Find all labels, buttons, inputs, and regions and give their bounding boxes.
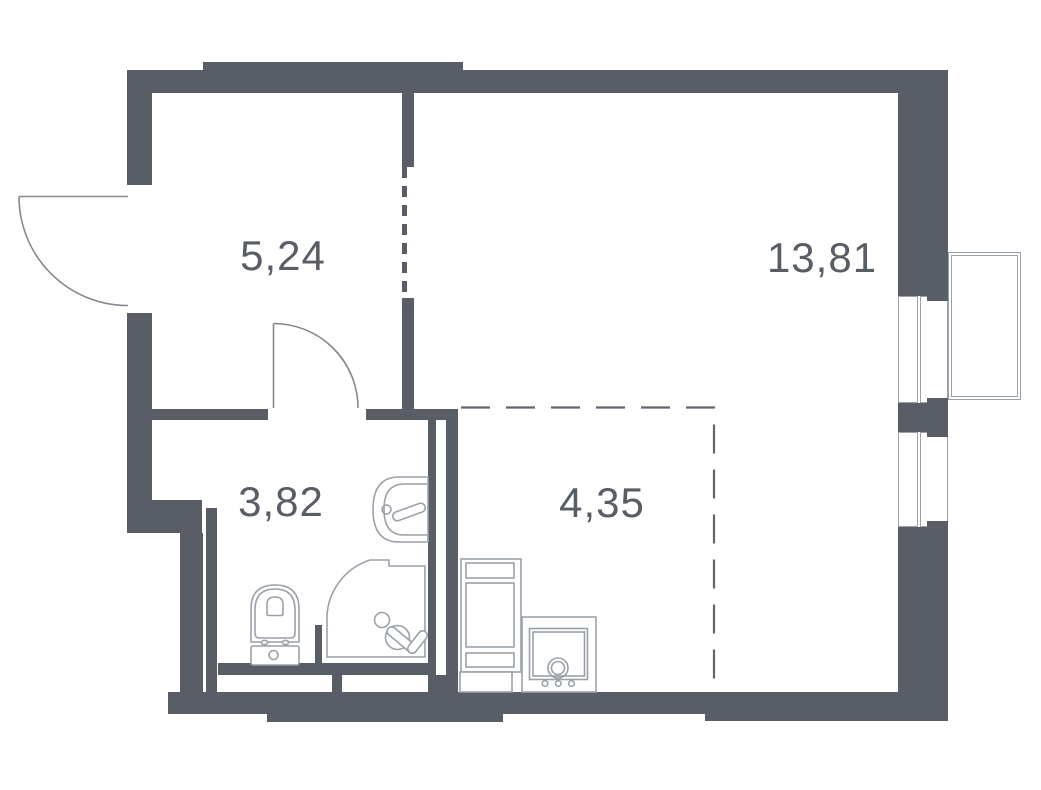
entry-door <box>19 197 128 306</box>
wall-left-inner-strip <box>206 508 217 692</box>
wall-bath-right <box>428 420 436 675</box>
stove <box>522 617 596 692</box>
wall-right-pier <box>898 403 948 432</box>
window-reveal-step-4 <box>927 521 948 527</box>
washbasin <box>373 477 428 542</box>
toilet <box>251 585 299 665</box>
room-label-living-room: 13,81 <box>767 234 877 282</box>
room-label-bathroom: 3,82 <box>238 478 324 526</box>
wall-left-above-door <box>127 93 152 185</box>
wall-partition-upper <box>402 93 414 167</box>
window-reveal-step-1 <box>927 296 948 301</box>
wall-duct-stub <box>332 675 342 692</box>
wall-bath-bottom <box>218 663 436 675</box>
window-lower-glazing-line <box>917 432 921 527</box>
room-label-kitchen: 4,35 <box>559 479 645 527</box>
floor-plan: 5,24 13,81 3,82 4,35 <box>0 0 1041 790</box>
wall-left-below-door <box>127 313 152 500</box>
window-upper-glazing-line <box>917 296 921 403</box>
window-upper <box>898 296 948 403</box>
room-label-hallway: 5,24 <box>240 232 326 280</box>
wall-right-lower <box>898 527 948 692</box>
tall-cabinet <box>460 559 521 692</box>
bathroom-door <box>274 324 359 409</box>
wall-right-upper <box>898 93 948 296</box>
wall-shower-stub <box>315 625 322 663</box>
shower <box>327 560 429 657</box>
wall-top-tab <box>203 62 463 71</box>
wall-left-jog-block <box>127 500 202 533</box>
wall-left-lower <box>180 533 203 692</box>
wall-kitchen-side <box>446 420 458 692</box>
window-lower <box>898 432 948 527</box>
fixtures-layer <box>0 0 1041 790</box>
balcony <box>948 252 1021 400</box>
wall-bottom-tab-right <box>705 714 948 721</box>
balcony-inner-line <box>951 255 1018 397</box>
wall-top <box>127 70 948 93</box>
wall-bottom-tab-left <box>267 714 503 722</box>
kitchen-zone-dashed-boundary <box>461 408 714 691</box>
wall-partition-lower <box>402 298 414 409</box>
wall-bath-top-left <box>152 409 268 420</box>
window-reveal-step-2 <box>927 398 948 403</box>
wall-bath-top-right <box>366 409 458 420</box>
wall-corner-stub <box>428 675 448 692</box>
window-reveal-step-3 <box>927 432 948 437</box>
wall-bottom <box>168 692 948 714</box>
